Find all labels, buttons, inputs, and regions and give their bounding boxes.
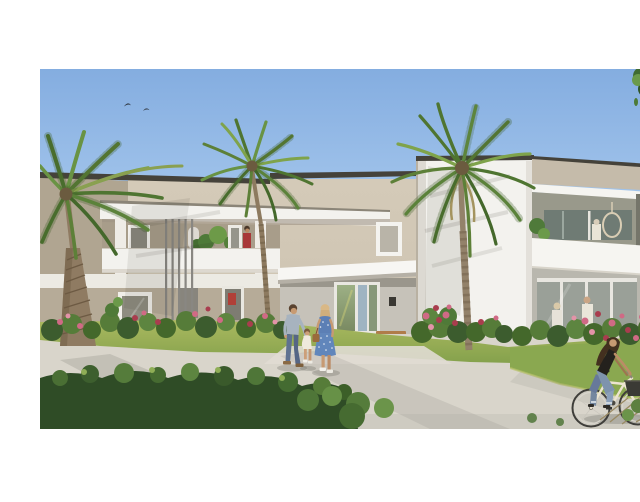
wall-lamp bbox=[389, 297, 396, 306]
entrance-doors bbox=[334, 282, 380, 334]
rendering-photo bbox=[40, 16, 640, 486]
scene-canvas bbox=[40, 16, 640, 486]
